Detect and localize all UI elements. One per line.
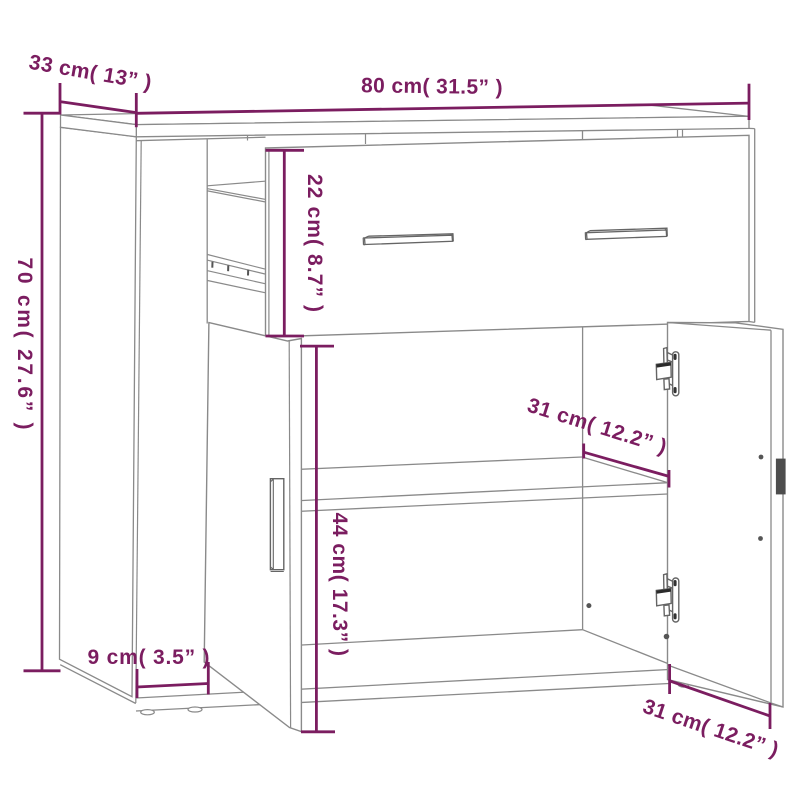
svg-text:44 cm( 17.3” ): 44 cm( 17.3” ) <box>328 513 351 657</box>
svg-text:70 cm( 27.6” ): 70 cm( 27.6” ) <box>13 258 36 430</box>
svg-text:22 cm( 8.7” ): 22 cm( 8.7” ) <box>303 174 326 312</box>
svg-text:80 cm( 31.5” ): 80 cm( 31.5” ) <box>361 74 503 99</box>
svg-text:9 cm( 3.5” ): 9 cm( 3.5” ) <box>88 646 210 669</box>
